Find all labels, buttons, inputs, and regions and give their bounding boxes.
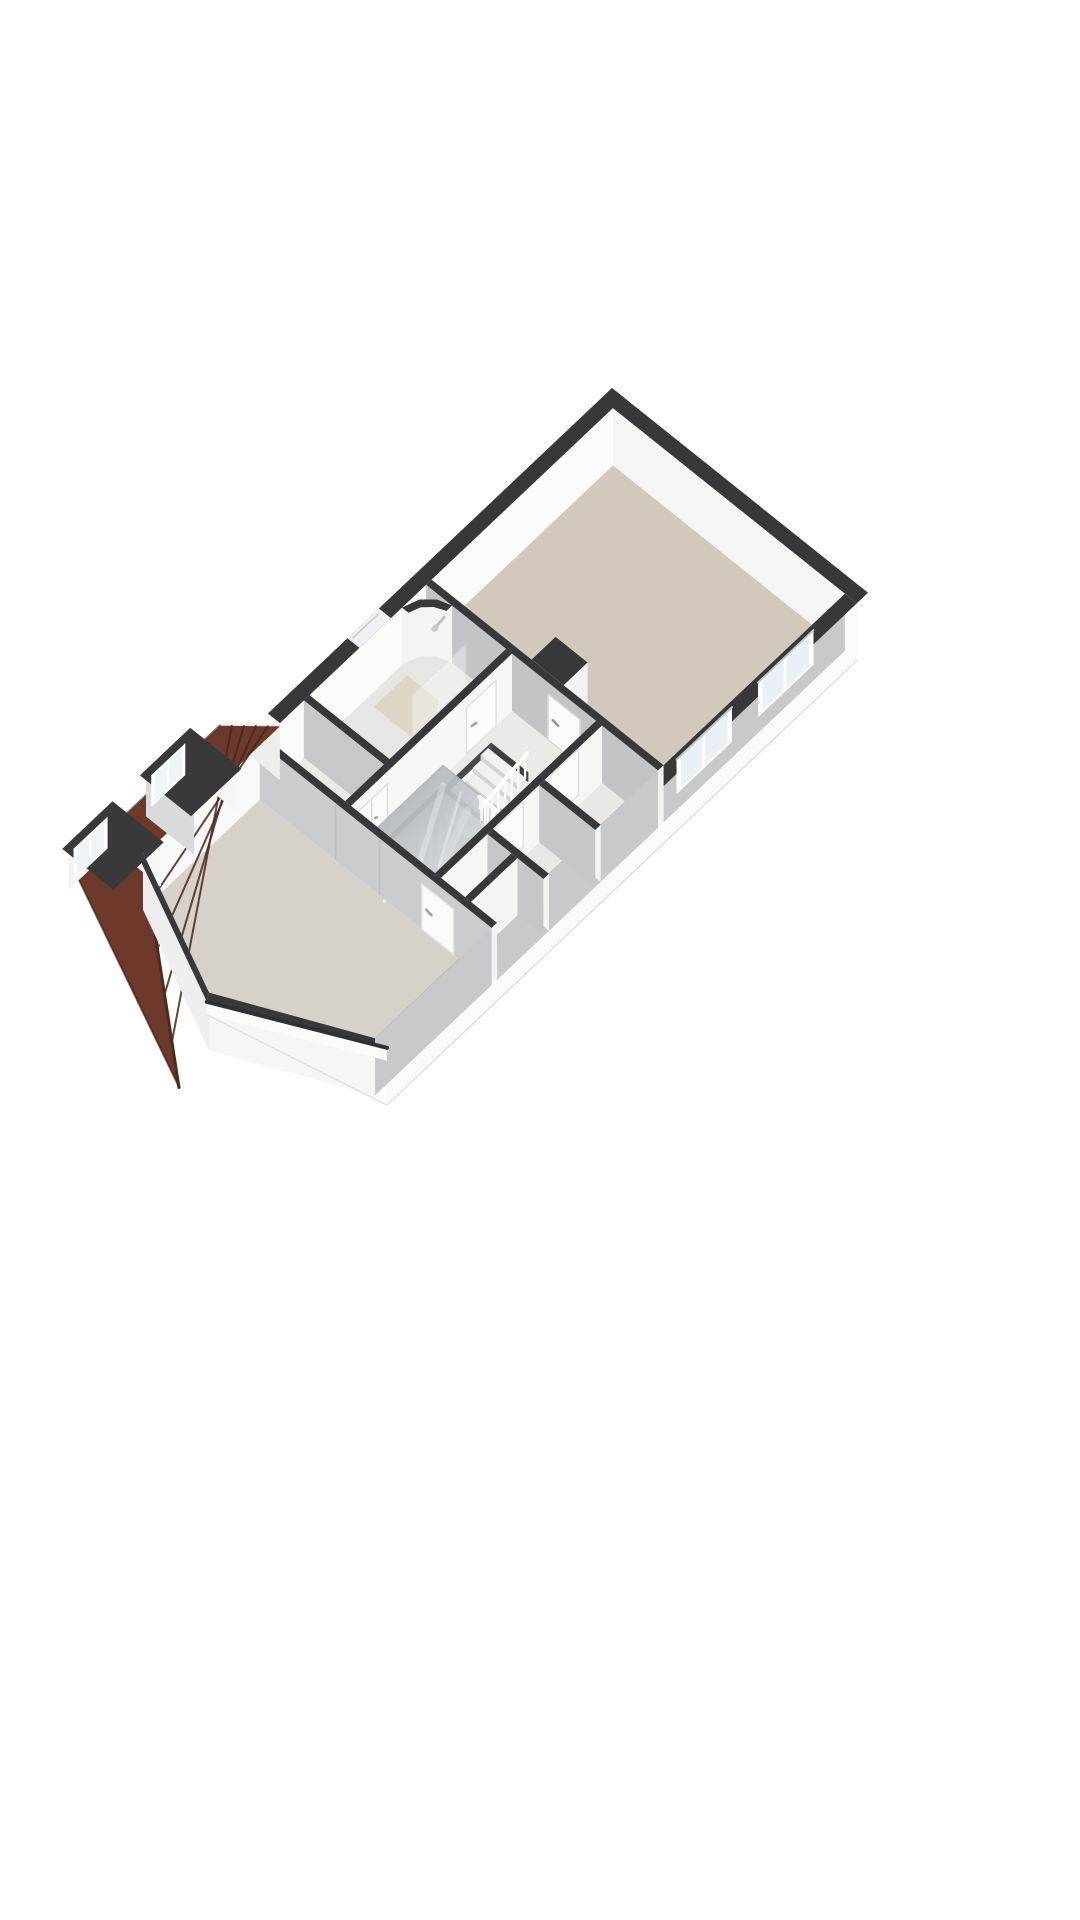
floorplan-page <box>0 0 1080 1920</box>
closet-handle-1 <box>375 817 377 818</box>
floorplan-3d-view <box>0 0 1080 1920</box>
shower-head <box>434 627 435 629</box>
